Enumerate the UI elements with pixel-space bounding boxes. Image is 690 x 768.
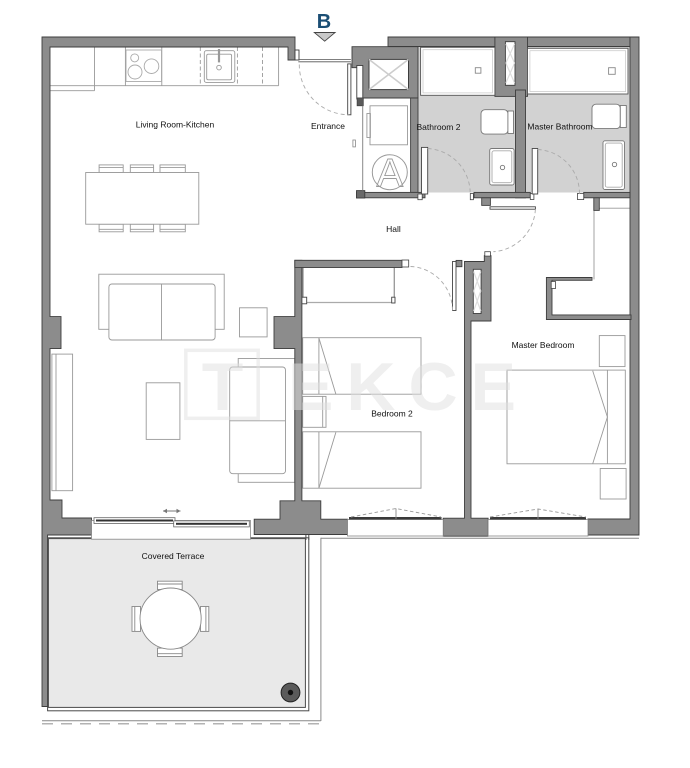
svg-text:Living Room-Kitchen: Living Room-Kitchen (136, 120, 215, 130)
svg-text:B: B (317, 11, 331, 33)
svg-text:Hall: Hall (386, 224, 401, 234)
svg-text:Covered Terrace: Covered Terrace (142, 551, 205, 561)
svg-text:Bathroom 2: Bathroom 2 (417, 122, 461, 132)
svg-text:EKCE: EKCE (288, 349, 529, 425)
svg-text:A: A (376, 152, 403, 196)
svg-text:Entrance: Entrance (311, 121, 345, 131)
svg-text:T: T (202, 349, 244, 425)
svg-text:Master Bathroom: Master Bathroom (527, 122, 592, 132)
